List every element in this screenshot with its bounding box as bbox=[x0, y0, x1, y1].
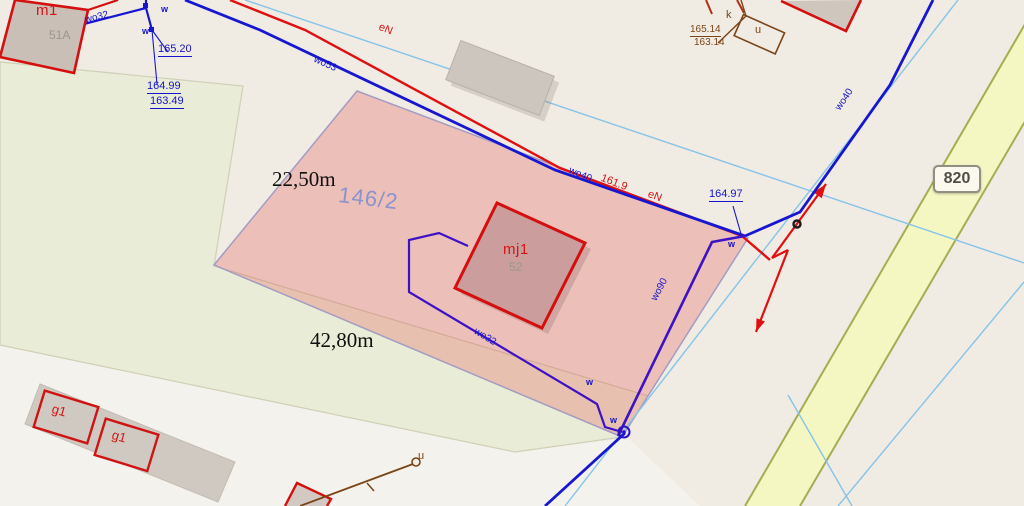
valve-node-icon bbox=[143, 3, 148, 8]
building-mj1-label: mj1 bbox=[503, 242, 529, 257]
building-m1-label: m1 bbox=[36, 3, 58, 18]
cadastral-map-canvas[interactable]: m1 51A mj1 52 g1 g1 146/2 22,50m 42,80m … bbox=[0, 0, 1024, 506]
utility-u-south-label: u bbox=[418, 451, 424, 462]
water-mark-label: w bbox=[610, 416, 617, 425]
water-mark-label: w bbox=[728, 240, 735, 249]
building-mj1-address: 52 bbox=[509, 261, 522, 273]
water-mark-label: w bbox=[142, 27, 149, 36]
elevation-164-97: 164.97 bbox=[709, 189, 743, 202]
water-mark-label: w bbox=[161, 5, 168, 14]
parcel-bottom-width-label: 42,80m bbox=[310, 330, 374, 351]
elevation-164-99: 164.99 bbox=[147, 81, 181, 94]
water-mark-label: w bbox=[586, 378, 593, 387]
elevation-165-20: 165.20 bbox=[158, 44, 192, 57]
elevation-163-14: 163.14 bbox=[694, 38, 725, 48]
road-number-badge: 820 bbox=[933, 165, 981, 193]
sewer-k-label: k bbox=[726, 10, 732, 21]
elevation-163-49: 163.49 bbox=[150, 96, 184, 109]
elevation-165-14: 165.14 bbox=[690, 25, 721, 37]
parcel-top-width-label: 22,50m bbox=[272, 169, 336, 190]
building-m1-address: 51A bbox=[49, 29, 70, 41]
hydrant-center-icon bbox=[622, 430, 626, 434]
utility-u-northeast-label: u bbox=[755, 25, 761, 36]
